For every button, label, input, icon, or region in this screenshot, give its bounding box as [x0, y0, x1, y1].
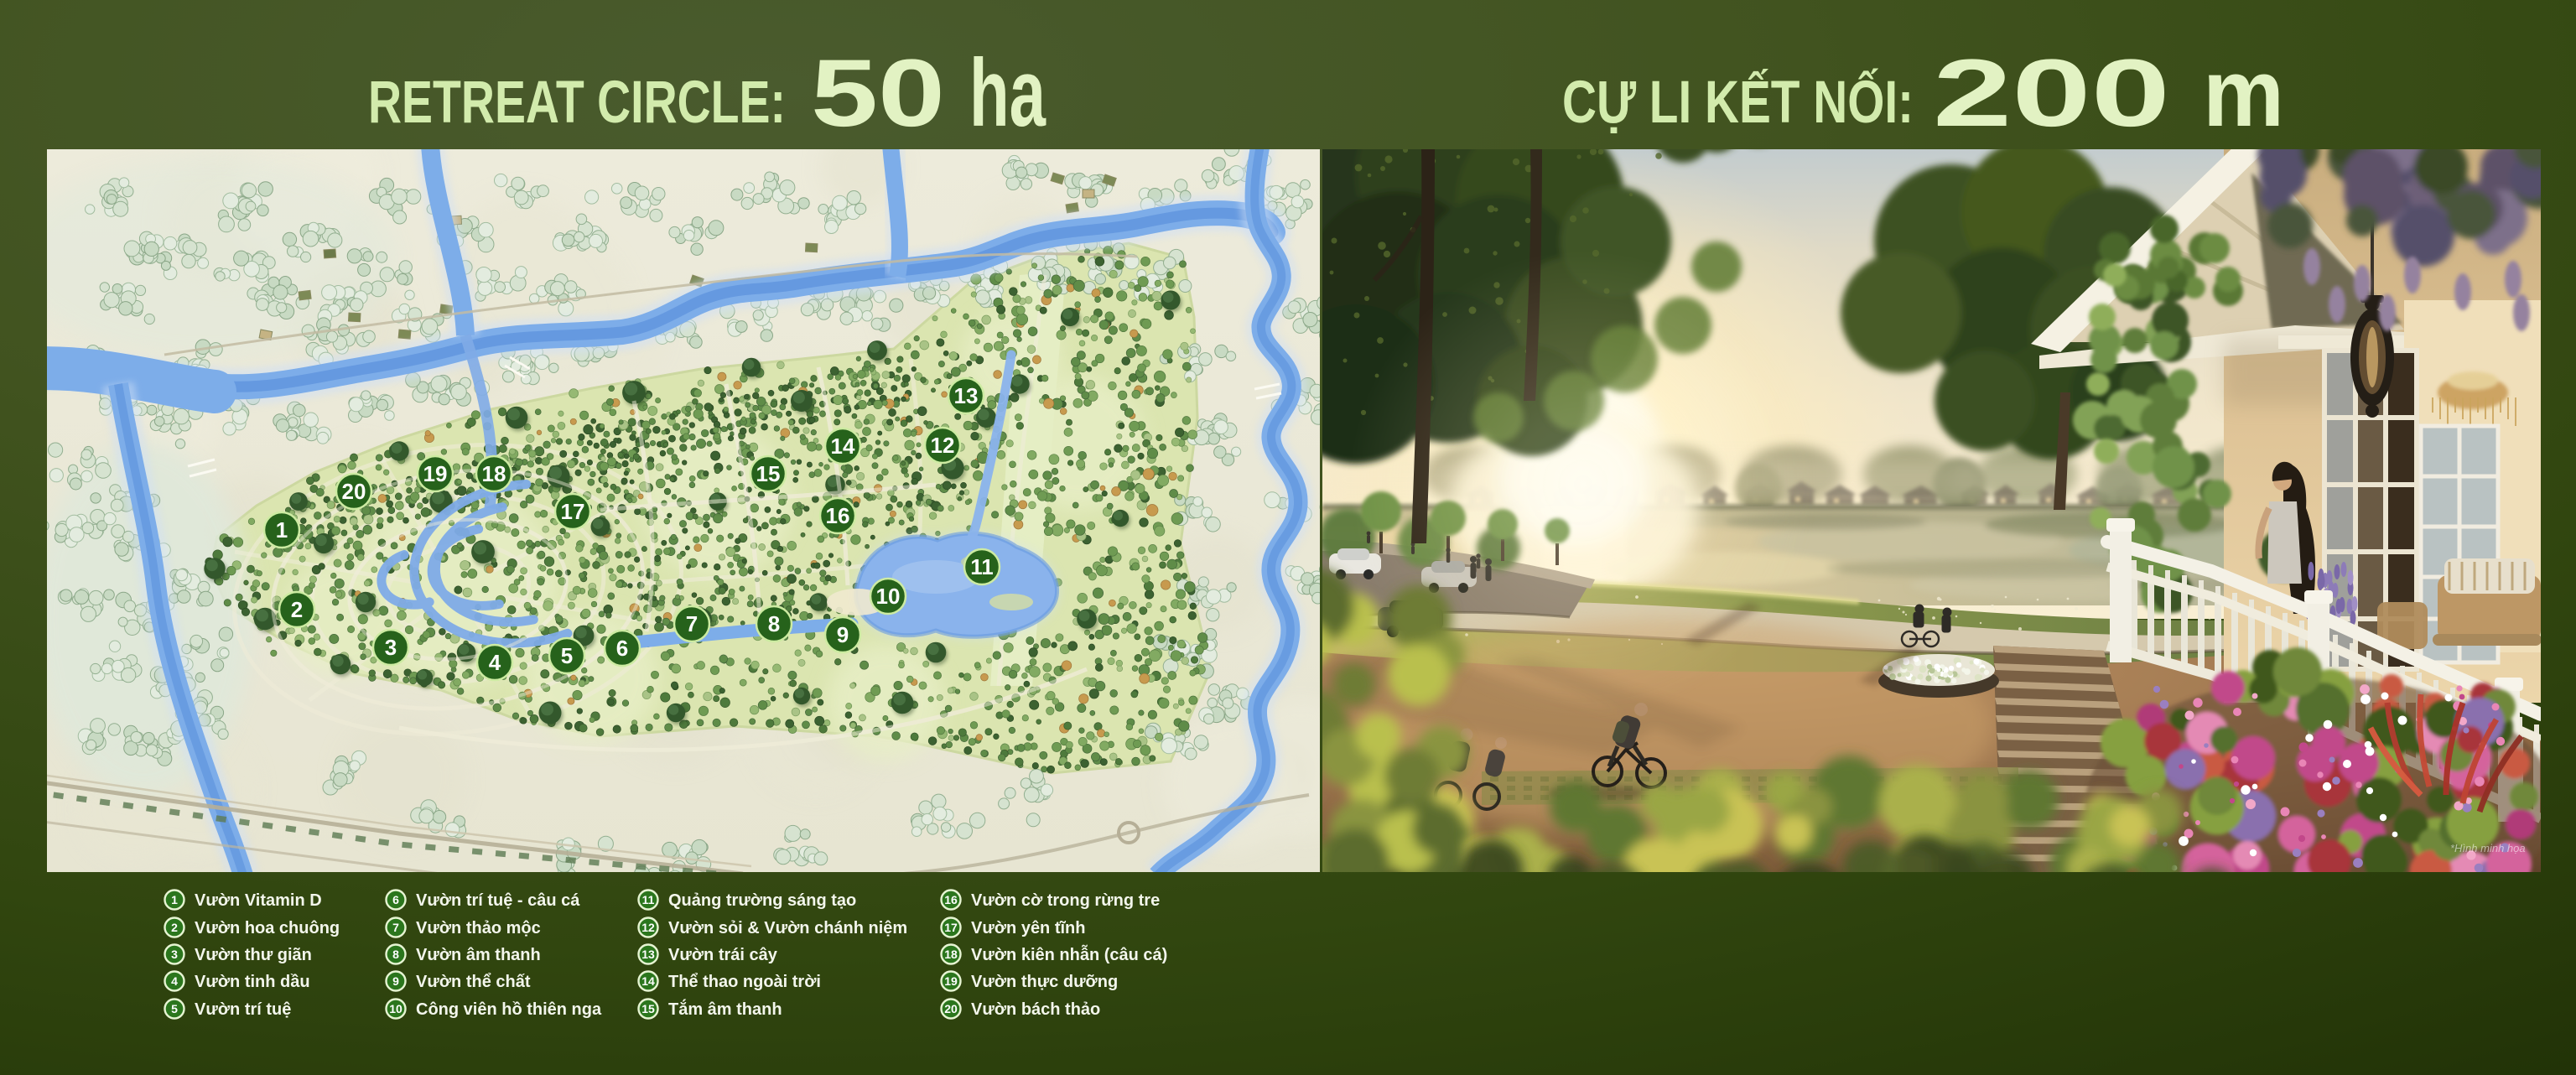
svg-text:10: 10 — [876, 584, 901, 609]
svg-text:14: 14 — [641, 974, 655, 988]
svg-text:Vườn trí tuệ - câu cá: Vườn trí tuệ - câu cá — [416, 891, 580, 910]
svg-text:Vườn thực dưỡng: Vườn thực dưỡng — [971, 973, 1118, 991]
svg-text:2: 2 — [171, 921, 178, 934]
svg-text:Vườn yên tĩnh: Vườn yên tĩnh — [971, 919, 1085, 937]
svg-text:13: 13 — [641, 948, 655, 961]
svg-text:18: 18 — [482, 461, 506, 486]
svg-text:4: 4 — [489, 650, 501, 675]
svg-text:6: 6 — [616, 636, 628, 661]
svg-text:Thể thao ngoài trời: Thể thao ngoài trời — [668, 973, 821, 991]
svg-text:Vườn thể chất: Vườn thể chất — [416, 973, 531, 991]
svg-text:12: 12 — [931, 433, 955, 458]
svg-text:4: 4 — [171, 974, 178, 988]
svg-text:Vườn sỏi & Vườn chánh niệm: Vườn sỏi & Vườn chánh niệm — [668, 919, 907, 937]
svg-text:14: 14 — [831, 434, 855, 459]
svg-text:50: 50 — [811, 40, 945, 147]
svg-text:Công viên hồ thiên nga: Công viên hồ thiên nga — [416, 1000, 602, 1019]
svg-text:15: 15 — [756, 461, 781, 486]
svg-text:20: 20 — [944, 1002, 958, 1015]
svg-text:11: 11 — [970, 554, 994, 579]
svg-text:19: 19 — [423, 461, 448, 486]
svg-text:Vườn âm thanh: Vườn âm thanh — [416, 946, 541, 964]
svg-text:3: 3 — [385, 635, 397, 660]
svg-text:CỰ LI KẾT NỐI:: CỰ LI KẾT NỐI: — [1562, 69, 1914, 136]
svg-text:RETREAT CIRCLE:: RETREAT CIRCLE: — [368, 70, 786, 136]
svg-text:18: 18 — [944, 948, 958, 961]
svg-text:Vườn trái cây: Vườn trái cây — [668, 946, 778, 964]
svg-text:17: 17 — [561, 499, 585, 524]
svg-text:Tắm âm thanh: Tắm âm thanh — [668, 999, 782, 1019]
svg-text:m: m — [2203, 40, 2284, 147]
svg-text:20: 20 — [342, 479, 366, 504]
svg-text:Vườn cờ trong rừng tre: Vườn cờ trong rừng tre — [971, 891, 1160, 910]
svg-text:Vườn bách thảo: Vườn bách thảo — [971, 1000, 1100, 1019]
svg-text:Quảng trường sáng tạo: Quảng trường sáng tạo — [668, 891, 856, 910]
svg-text:8: 8 — [392, 948, 399, 961]
svg-text:10: 10 — [389, 1002, 402, 1015]
svg-text:17: 17 — [944, 921, 958, 934]
svg-text:11: 11 — [642, 893, 655, 906]
svg-text:*Hình minh họa: *Hình minh họa — [2450, 842, 2526, 854]
svg-text:5: 5 — [171, 1002, 178, 1015]
svg-text:3: 3 — [171, 948, 178, 961]
svg-text:1: 1 — [171, 893, 178, 906]
svg-text:1: 1 — [276, 517, 288, 543]
svg-text:12: 12 — [641, 921, 655, 934]
svg-text:16: 16 — [944, 893, 958, 906]
svg-text:7: 7 — [686, 611, 698, 636]
svg-text:Vườn trí tuệ: Vườn trí tuệ — [195, 1000, 291, 1019]
svg-text:Vườn thư giãn: Vườn thư giãn — [195, 946, 312, 964]
svg-text:ha: ha — [969, 40, 1046, 147]
svg-text:13: 13 — [954, 383, 979, 408]
svg-text:15: 15 — [641, 1002, 655, 1015]
svg-text:5: 5 — [561, 643, 573, 668]
svg-text:Vườn thảo mộc: Vườn thảo mộc — [416, 919, 541, 937]
svg-text:19: 19 — [944, 974, 958, 988]
svg-text:16: 16 — [826, 503, 850, 528]
svg-text:9: 9 — [392, 974, 399, 988]
svg-text:9: 9 — [837, 622, 849, 647]
svg-text:7: 7 — [392, 921, 399, 934]
svg-text:200: 200 — [1933, 40, 2170, 147]
svg-text:6: 6 — [392, 893, 399, 906]
svg-text:Vườn hoa chuông: Vườn hoa chuông — [195, 919, 340, 937]
svg-text:8: 8 — [768, 611, 780, 636]
svg-text:Vườn Vitamin D: Vườn Vitamin D — [195, 891, 322, 910]
svg-text:Vườn kiên nhẫn (câu cá): Vườn kiên nhẫn (câu cá) — [971, 944, 1167, 964]
svg-text:2: 2 — [291, 597, 303, 622]
svg-text:Vườn tinh dầu: Vườn tinh dầu — [195, 973, 310, 991]
